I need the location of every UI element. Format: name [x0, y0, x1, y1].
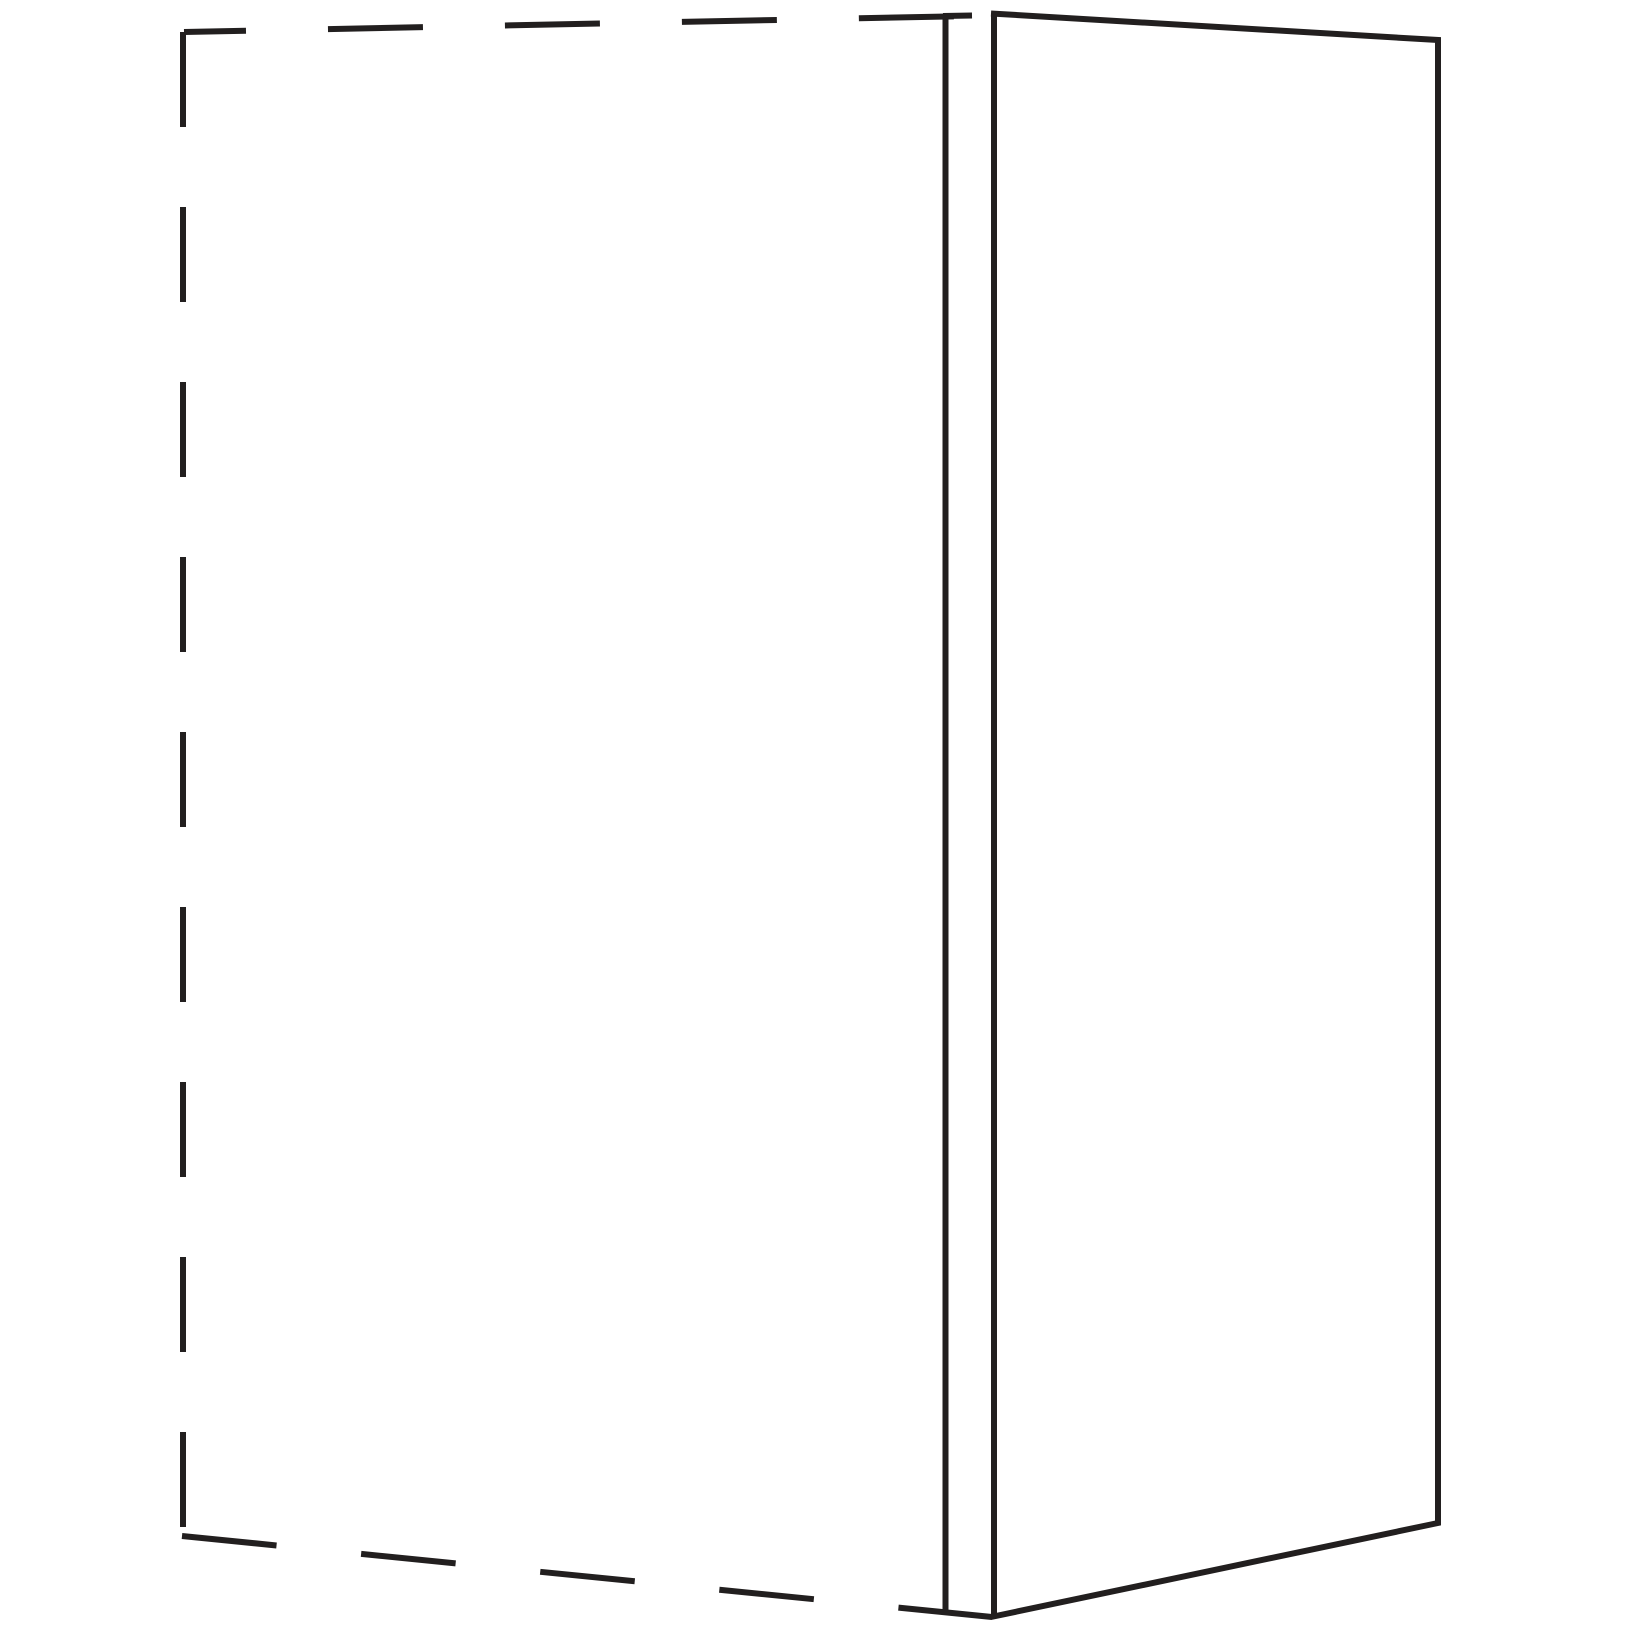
cabinet-outline-top-edge — [184, 16, 972, 32]
panel-diagram-svg — [0, 0, 1625, 1625]
panel-front-face — [991, 14, 1438, 1618]
panel-edge-face-top-line — [943, 16, 972, 17]
diagram-canvas — [0, 0, 1625, 1625]
cabinet-outline-bottom-edge — [182, 1536, 992, 1617]
